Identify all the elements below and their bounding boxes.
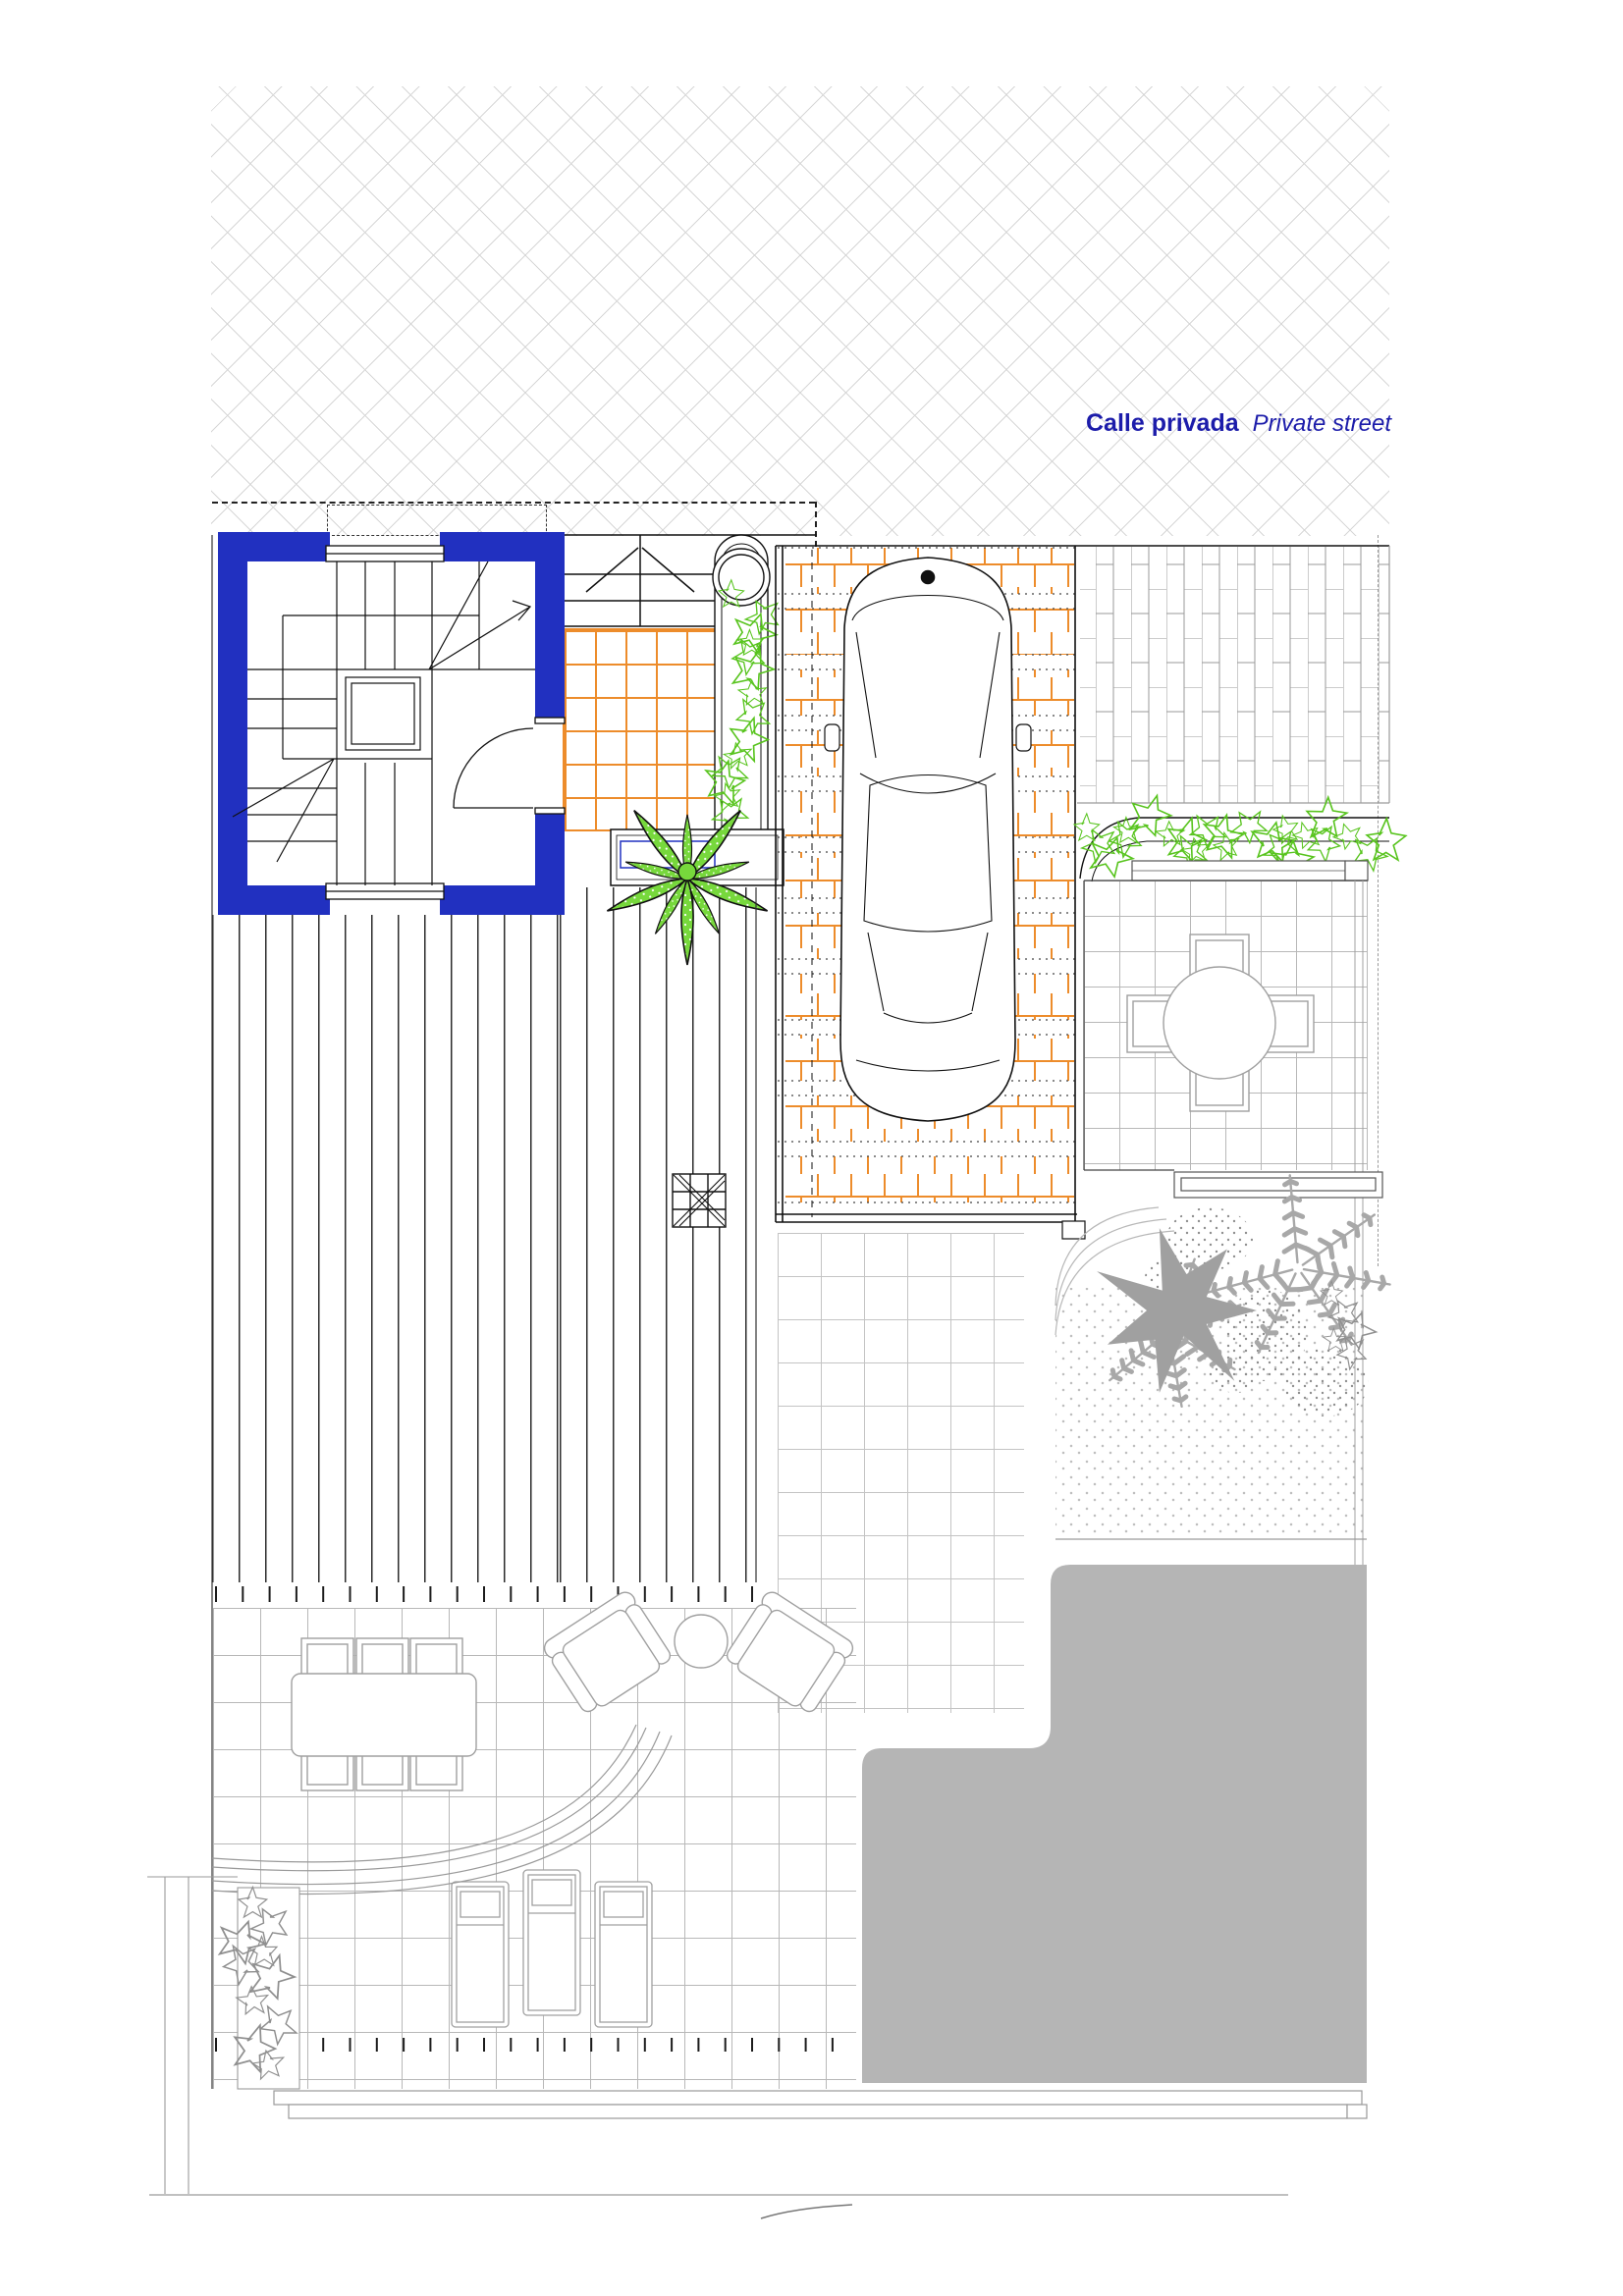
street-label: Calle privadaPrivate street xyxy=(1086,409,1391,438)
mirror-left xyxy=(825,724,839,751)
sun-lounger xyxy=(452,1882,509,2027)
side-table xyxy=(675,1615,728,1668)
site-plan: Calle privadaPrivate street xyxy=(0,0,1623,2296)
dining-chair xyxy=(356,1638,408,1676)
roof-lines xyxy=(565,535,817,626)
pool xyxy=(862,1565,1367,2083)
car xyxy=(825,558,1031,1121)
left-planter xyxy=(147,1877,299,2194)
hood-emblem xyxy=(922,571,935,584)
patio-bench-band xyxy=(1174,1172,1382,1198)
sun-lounger xyxy=(595,1882,652,2027)
brick-sidewalk xyxy=(1077,546,1389,803)
blue-walls xyxy=(218,532,565,915)
deck-cross-brace xyxy=(673,1174,726,1227)
sun-loungers xyxy=(452,1870,652,2027)
round-table xyxy=(1163,967,1275,1079)
dining-table xyxy=(292,1674,476,1756)
paver-strip xyxy=(785,1156,1074,1202)
deck-edges xyxy=(212,535,756,2089)
dining-chair xyxy=(410,1638,462,1676)
garden-step-band xyxy=(1132,861,1368,881)
deck-board-ends xyxy=(216,1586,752,1602)
dining-chair xyxy=(301,1753,353,1790)
armchair-right xyxy=(723,1588,856,1717)
terrace-board-ends xyxy=(216,2038,833,2052)
sketch-mark xyxy=(761,2205,852,2218)
plan-drawing xyxy=(0,0,1623,2296)
tree-circle xyxy=(713,549,770,606)
dining-chair xyxy=(301,1638,353,1676)
mirror-right xyxy=(1016,724,1031,751)
entry-door xyxy=(454,718,565,814)
door-swing-arc xyxy=(454,728,533,808)
lounge-set xyxy=(541,1588,856,1717)
street-label-en: Private street xyxy=(1253,410,1391,437)
dining-chair xyxy=(410,1753,462,1790)
sun-lounger xyxy=(523,1870,580,2015)
stair-windows xyxy=(326,546,444,899)
bench-bands xyxy=(274,2091,1367,2118)
street-label-es: Calle privada xyxy=(1086,409,1239,437)
stair-enclosure xyxy=(218,532,565,915)
armchair-left xyxy=(541,1588,675,1717)
planter-column xyxy=(713,535,770,834)
dining-set xyxy=(292,1638,476,1790)
stair-flights xyxy=(233,561,535,885)
dining-chair xyxy=(356,1753,408,1790)
garden-bed xyxy=(1055,1174,1392,1539)
